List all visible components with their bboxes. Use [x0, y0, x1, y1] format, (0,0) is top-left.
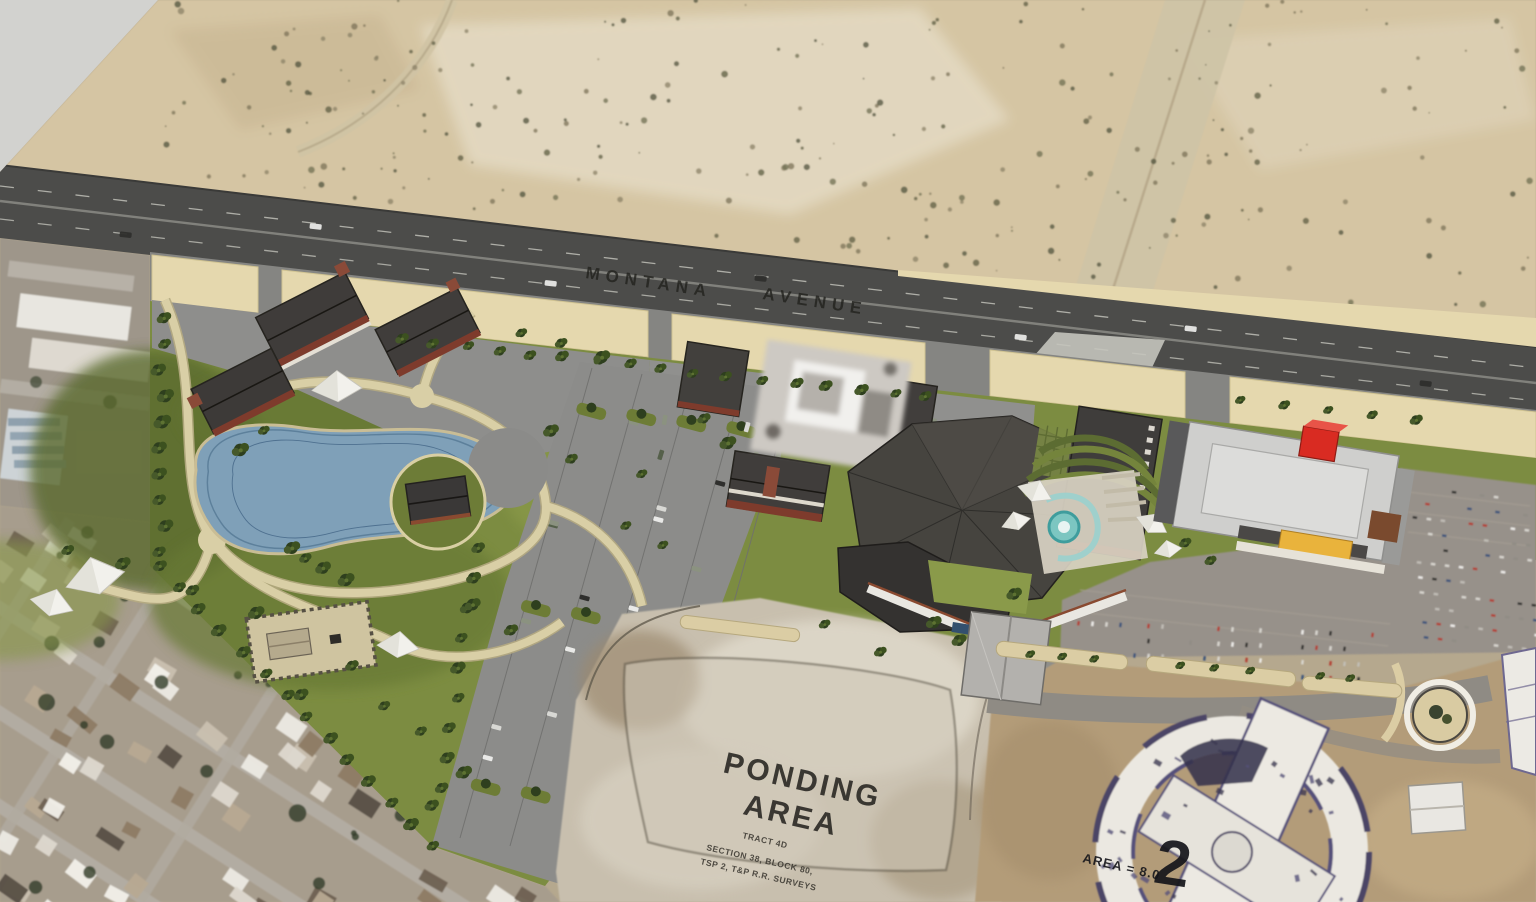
- desert-shrub: [1221, 128, 1224, 131]
- red-entry-cube: [1299, 426, 1339, 461]
- desert-shrub: [262, 125, 264, 127]
- residential-tree: [289, 804, 307, 822]
- desert-shrub: [959, 195, 965, 201]
- desert-shrub: [490, 199, 495, 204]
- desert-shrub: [438, 68, 442, 72]
- desert-shrub: [1083, 118, 1089, 124]
- desert-shrub: [1428, 112, 1430, 114]
- desert-shrub: [597, 58, 599, 60]
- desert-shrub: [178, 8, 185, 15]
- desert-shrub: [393, 169, 397, 173]
- desert-shrub: [165, 125, 167, 127]
- residential-tree: [100, 734, 115, 749]
- desert-shrub: [1381, 88, 1387, 94]
- desert-shrub: [1056, 184, 1060, 188]
- parking-island-tree: [636, 409, 646, 419]
- parking-island-tree: [586, 403, 596, 413]
- desert-shrub: [676, 16, 680, 20]
- desert-shrub: [348, 80, 350, 82]
- desert-shrub: [340, 69, 342, 71]
- desert-shrub: [929, 192, 932, 195]
- desert-shrub: [1058, 259, 1060, 261]
- desert-shrub: [849, 237, 855, 243]
- desert-shrub: [798, 106, 802, 110]
- desert-shrub: [1407, 86, 1412, 91]
- desert-shrub: [1241, 209, 1244, 212]
- desert-shrub: [1526, 178, 1533, 185]
- desert-shrub: [1299, 149, 1301, 151]
- desert-shrub: [714, 234, 718, 238]
- desert-shrub: [471, 63, 475, 67]
- desert-shrub: [380, 168, 382, 170]
- desert-shrub: [1465, 50, 1467, 52]
- desert-shrub: [1207, 154, 1210, 157]
- desert-shrub: [1153, 180, 1158, 185]
- desert-shrub: [422, 113, 426, 117]
- gazebo: [406, 476, 471, 525]
- desert-shrub: [1521, 266, 1526, 271]
- residential-tree: [80, 721, 88, 729]
- desert-shrub: [242, 174, 246, 178]
- ponding-area: PONDING AREA TRACT 4D SECTION 38, BLOCK …: [556, 598, 1010, 902]
- desert-shrub: [318, 182, 324, 188]
- desert-shrub: [1060, 43, 1065, 48]
- desert-shrub: [293, 28, 296, 31]
- desert-shrub: [1240, 137, 1243, 140]
- desert-shrub: [321, 36, 326, 41]
- residential-tree: [313, 877, 325, 889]
- parking-island-tree: [581, 607, 591, 617]
- residential-tree: [83, 866, 95, 878]
- desert-shrub: [750, 144, 755, 149]
- desert-shrub: [1503, 106, 1506, 109]
- desert-shrub: [351, 23, 357, 29]
- desert-shrub: [1303, 218, 1309, 224]
- desert-shrub: [973, 260, 980, 267]
- desert-shrub: [286, 128, 291, 133]
- desert-shrub: [163, 142, 169, 148]
- residential-tree: [352, 833, 359, 840]
- desert-shrub: [372, 90, 376, 94]
- site-plan-svg: MONTANA AVENUE SOUTHWEST CONVENIENCE ST.…: [0, 0, 1536, 902]
- desert-shrub: [305, 90, 310, 95]
- desert-shrub: [1171, 218, 1176, 223]
- desert-shrub: [913, 256, 919, 262]
- desert-shrub: [1519, 65, 1525, 71]
- desert-shrub: [1091, 274, 1096, 279]
- desert-shrub: [1215, 81, 1219, 85]
- desert-shrub: [946, 72, 950, 76]
- desert-shrub: [342, 167, 345, 170]
- desert-shrub: [1269, 84, 1271, 86]
- desert-shrub: [476, 122, 482, 128]
- desert-shrub: [1366, 9, 1368, 11]
- desert-shrub: [1050, 224, 1055, 229]
- desert-shrub: [284, 31, 289, 36]
- desert-shrub: [304, 187, 306, 189]
- desert-shrub: [922, 127, 926, 131]
- desert-shrub: [412, 65, 417, 70]
- residential-tree: [154, 675, 168, 689]
- desert-shrub: [650, 94, 657, 101]
- desert-shrub: [941, 124, 945, 128]
- desert-shrub: [1268, 43, 1272, 47]
- desert-shrub: [621, 18, 627, 24]
- desert-shrub: [207, 174, 211, 178]
- desert-shrub: [172, 111, 176, 115]
- desert-shrub: [1135, 147, 1140, 152]
- desert-shrub: [465, 29, 469, 33]
- desert-shrub: [1249, 149, 1253, 153]
- desert-shrub: [1059, 79, 1066, 86]
- desert-shrub: [383, 79, 386, 82]
- school-zone-aerial: 2 AREA = 8.0: [975, 648, 1536, 902]
- desert-shrub: [362, 112, 364, 114]
- residential-tree: [200, 765, 213, 778]
- desert-shrub: [620, 121, 623, 124]
- desert-shrub: [1254, 92, 1261, 99]
- desert-shrub: [1248, 219, 1250, 221]
- desert-shrub: [271, 45, 277, 51]
- desert-shrub: [1213, 119, 1215, 121]
- desert-shrub: [397, 105, 399, 107]
- desert-shrub: [1300, 10, 1303, 13]
- desert-shrub: [247, 105, 252, 110]
- desert-shrub: [1258, 207, 1263, 212]
- desert-shrub: [795, 54, 799, 58]
- desert-shrub: [1306, 144, 1308, 146]
- desert-shrub: [924, 218, 928, 222]
- desert-shrub: [804, 164, 810, 170]
- desert-shrub: [333, 107, 337, 111]
- desert-shrub: [306, 122, 308, 124]
- desert-shrub: [782, 164, 788, 170]
- desert-shrub: [872, 113, 876, 117]
- desert-shrub: [388, 199, 394, 205]
- desert-shrub: [493, 105, 498, 110]
- desert-shrub: [667, 10, 673, 16]
- desert-shrub: [674, 61, 679, 66]
- desert-shrub: [1002, 67, 1004, 69]
- residential-tree: [29, 880, 43, 894]
- desert-shrub: [1416, 56, 1420, 60]
- shed: [1408, 782, 1465, 834]
- desert-shrub: [822, 43, 824, 45]
- desert-shrub: [470, 103, 473, 106]
- desert-shrub: [584, 89, 589, 94]
- desert-shrub: [423, 129, 426, 132]
- desert-shrub: [1229, 24, 1232, 27]
- desert-shrub: [603, 98, 608, 103]
- desert-shrub: [867, 108, 873, 114]
- parking-island-tree: [531, 600, 541, 610]
- desert-shrub: [1070, 86, 1074, 90]
- desert-shrub: [1235, 276, 1241, 282]
- desert-shrub: [943, 262, 949, 268]
- desert-shrub: [1175, 49, 1178, 52]
- desert-shrub: [846, 243, 852, 249]
- desert-shrub: [577, 178, 580, 181]
- desert-shrub: [401, 81, 405, 85]
- desert-shrub: [1023, 2, 1028, 7]
- desert-shrub: [363, 24, 366, 27]
- desert-shrub: [1510, 191, 1516, 197]
- desert-shrub: [814, 39, 817, 42]
- desert-shrub: [1198, 77, 1201, 80]
- desert-shrub: [1208, 30, 1210, 32]
- desert-shrub: [1201, 222, 1206, 227]
- desert-shrub: [788, 163, 794, 169]
- desert-shrub: [1454, 303, 1457, 306]
- desert-shrub: [1037, 151, 1043, 157]
- residential-tree: [93, 636, 105, 648]
- desert-shrub: [1087, 171, 1093, 177]
- desert-shrub: [929, 29, 931, 31]
- desert-shrub: [269, 132, 272, 135]
- desert-shrub: [393, 152, 395, 154]
- desert-shrub: [286, 80, 292, 86]
- desert-shrub: [638, 152, 640, 154]
- desert-shrub: [1151, 159, 1157, 165]
- desert-shrub: [290, 90, 293, 93]
- desert-shrub: [726, 198, 732, 204]
- desert-shrub: [1214, 285, 1218, 289]
- desert-shrub: [1097, 262, 1101, 266]
- desert-shrub: [801, 147, 804, 150]
- desert-shrub: [1265, 3, 1269, 7]
- desert-shrub: [1000, 167, 1005, 172]
- desert-shrub: [960, 200, 964, 204]
- desert-shrub: [1480, 301, 1487, 308]
- desert-shrub: [1019, 20, 1023, 24]
- desert-shrub: [830, 179, 836, 185]
- desert-shrub: [893, 134, 896, 137]
- desert-shrub: [863, 78, 865, 80]
- desert-shrub: [996, 270, 998, 272]
- desert-shrub: [432, 41, 436, 45]
- desert-shrub: [471, 161, 473, 163]
- desert-shrub: [1458, 271, 1462, 275]
- desert-shrub: [1441, 225, 1446, 230]
- desert-shrub: [182, 101, 186, 105]
- desert-shrub: [473, 207, 476, 210]
- desert-shrub: [840, 244, 845, 249]
- desert-shrub: [1426, 253, 1432, 259]
- desert-shrub: [993, 199, 1000, 206]
- desert-shrub: [1420, 155, 1425, 160]
- desert-shrub: [1172, 162, 1175, 165]
- desert-shrub: [996, 234, 1000, 238]
- desert-shrub: [856, 249, 861, 254]
- parking-island-tree: [481, 779, 491, 789]
- desert-shrub: [1109, 72, 1113, 76]
- desert-shrub: [1175, 234, 1178, 237]
- desert-shrub: [758, 169, 764, 175]
- desert-shrub: [1248, 128, 1254, 134]
- desert-shrub: [375, 56, 378, 59]
- splash-pad: [1028, 470, 1148, 574]
- desert-shrub: [887, 237, 890, 240]
- desert-shrub: [667, 99, 671, 103]
- desert-shrub: [1204, 214, 1210, 220]
- desert-shrub: [598, 155, 602, 159]
- desert-shrub: [696, 168, 702, 174]
- desert-shrub: [1207, 159, 1212, 164]
- desert-shrub: [221, 78, 227, 84]
- desert-shrub: [1339, 230, 1344, 235]
- desert-shrub: [597, 145, 600, 148]
- desert-shrub: [295, 61, 301, 67]
- desert-shrub: [777, 48, 780, 51]
- desert-shrub: [1082, 8, 1085, 11]
- desert-shrub: [1527, 257, 1529, 259]
- desert-shrub: [931, 76, 935, 80]
- desert-shrub: [1224, 153, 1228, 157]
- desert-shrub: [1426, 218, 1432, 224]
- desert-shrub: [232, 73, 235, 76]
- render-viewport[interactable]: MONTANA AVENUE SOUTHWEST CONVENIENCE ST.…: [0, 0, 1536, 902]
- desert-shrub: [1168, 77, 1171, 80]
- desert-shrub: [325, 106, 332, 113]
- desert-shrub: [617, 197, 623, 203]
- desert-shrub: [1106, 128, 1112, 134]
- desert-shrub: [502, 189, 505, 192]
- desert-shrub: [281, 59, 286, 64]
- desert-shrub: [862, 181, 868, 187]
- desert-shrub: [409, 50, 413, 54]
- desert-shrub: [930, 202, 937, 209]
- desert-shrub: [308, 167, 315, 174]
- desert-shrub: [863, 42, 869, 48]
- desert-shrub: [948, 207, 952, 211]
- desert-shrub: [794, 237, 800, 243]
- desert-shrub: [1501, 27, 1503, 29]
- desert-shrub: [1385, 22, 1388, 25]
- desert-shrub: [265, 170, 269, 174]
- desert-shrub: [1254, 159, 1260, 165]
- desert-shrub: [877, 99, 883, 105]
- desert-shrub: [1412, 106, 1417, 111]
- desert-shrub: [796, 139, 800, 143]
- desert-shrub: [458, 155, 464, 161]
- desert-shrub: [1163, 233, 1169, 239]
- desert-shrub: [1011, 226, 1013, 228]
- desert-shrub: [593, 171, 598, 176]
- desert-shrub: [445, 132, 449, 136]
- desert-shrub: [745, 4, 747, 6]
- desert-shrub: [353, 196, 357, 200]
- desert-shrub: [348, 33, 353, 38]
- desert-shrub: [1011, 230, 1013, 232]
- desert-shrub: [721, 71, 728, 78]
- desert-shrub: [1205, 64, 1207, 66]
- desert-shrub: [962, 251, 967, 256]
- desert-shrub: [819, 157, 821, 159]
- desert-shrub: [641, 117, 647, 123]
- desert-shrub: [393, 156, 396, 159]
- desert-shrub: [1514, 48, 1519, 53]
- desert-shrub: [1293, 11, 1296, 14]
- desert-shrub: [925, 235, 929, 239]
- desert-shrub: [1286, 266, 1292, 272]
- desert-shrub: [1123, 198, 1126, 201]
- desert-shrub: [936, 18, 940, 22]
- desert-shrub: [1088, 115, 1092, 119]
- desert-shrub: [553, 195, 558, 200]
- desert-shrub: [533, 129, 537, 133]
- desert-shrub: [320, 163, 327, 170]
- desert-shrub: [1149, 247, 1151, 249]
- parking-island-tree: [531, 786, 541, 796]
- desert-shrub: [1494, 18, 1500, 24]
- desert-shrub: [914, 197, 918, 201]
- residential-tree: [38, 694, 55, 711]
- desert-shrub: [1182, 151, 1188, 157]
- desert-shrub: [1116, 191, 1119, 194]
- desert-shrub: [523, 118, 529, 124]
- desert-shrub: [746, 173, 749, 176]
- desert-shrub: [428, 178, 430, 180]
- desert-shrub: [520, 191, 526, 197]
- desert-shrub: [901, 187, 908, 194]
- desert-shrub: [174, 1, 181, 8]
- desert-shrub: [544, 149, 550, 155]
- desert-shrub: [564, 121, 569, 126]
- desert-shrub: [919, 193, 922, 196]
- desert-shrub: [1343, 199, 1348, 204]
- desert-shrub: [506, 77, 510, 81]
- parking-island-tree: [686, 415, 696, 425]
- desert-shrub: [1048, 248, 1055, 255]
- desert-shrub: [517, 89, 522, 94]
- desert-shrub: [665, 82, 671, 88]
- desert-shrub: [611, 23, 614, 26]
- desert-shrub: [932, 21, 936, 25]
- desert-shrub: [626, 123, 629, 126]
- desert-shrub: [833, 143, 835, 145]
- desert-shrub: [1085, 178, 1087, 180]
- roof-speck: [1300, 790, 1307, 796]
- desert-shrub: [402, 186, 405, 189]
- desert-shrub: [604, 21, 606, 23]
